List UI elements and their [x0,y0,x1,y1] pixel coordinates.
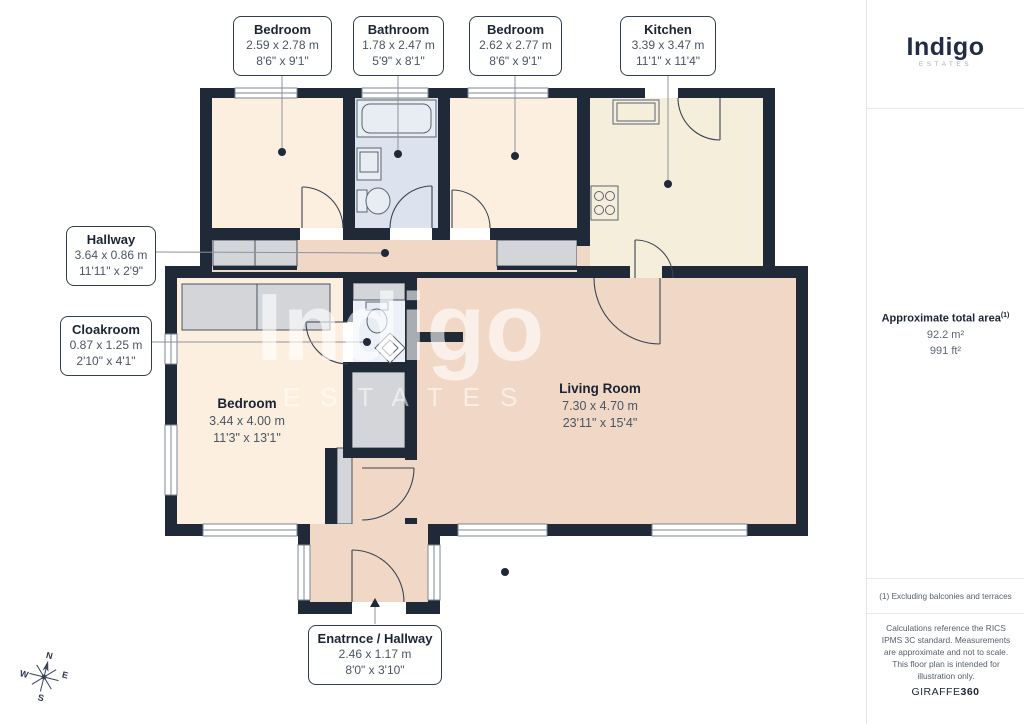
compass-w: W [19,668,30,680]
window [165,334,177,364]
window [298,545,310,600]
label-bedroom-top-mid: Bedroom 2.62 x 2.77 m 8'6" x 9'1" [469,16,562,76]
label-bathroom: Bathroom 1.78 x 2.47 m 5'9" x 8'1" [353,16,444,76]
total-area-imperial: 991 ft² [867,343,1024,359]
bathtub [357,100,436,137]
disclaimer-text: Calculations reference the RICS IPMS 3C … [877,622,1015,682]
door-opening-kitchen [645,88,678,98]
closet-corridor-side [337,448,352,524]
brand-tagline: ESTATES [867,61,1024,68]
room-bedroom-top-mid [450,98,577,228]
cloakroom-counter [353,283,405,300]
floorplan-page: N E W S Indigo ESTATES Bedroom 2.59 x 2.… [0,0,1024,724]
room-bedroom-top-left [212,98,343,228]
window [468,88,548,98]
compass-n: N [45,650,54,661]
room-kitchen [590,98,763,266]
closet-center [352,372,405,448]
divider [867,108,1024,109]
giraffe360-name: GIRAFFE [911,686,960,698]
total-area-title: Approximate total area [882,313,1001,325]
giraffe360-suffix: 360 [960,686,979,698]
brand-name: Indigo [867,34,1024,60]
compass-s: S [37,692,45,703]
window [458,524,547,536]
window [428,545,440,600]
info-sidebar: Indigo ESTATES Approximate total area(1)… [866,0,1024,724]
bathroom-sink [357,148,381,180]
window [235,88,297,98]
cloakroom-toilet [366,302,388,333]
label-hallway: Hallway 3.64 x 0.86 m 11'11" x 2'9" [66,226,156,286]
brand-logo: Indigo ESTATES [867,34,1024,68]
label-entrance-hallway: Enatrnce / Hallway 2.46 x 1.17 m 8'0" x … [308,625,442,685]
footnote-text: (1) Excluding balconies and terraces [879,592,1011,601]
compass-e: E [61,669,69,680]
compass-north-needle [43,660,51,672]
total-area-footnote-ref: (1) [1001,312,1010,319]
footnote-section: (1) Excluding balconies and terraces [867,578,1024,614]
label-bedroom-bottom-left: Bedroom 3.44 x 4.00 m 11'3" x 13'1" [167,394,327,447]
window [362,88,428,98]
label-kitchen: Kitchen 3.39 x 3.47 m 11'1" x 11'4" [620,16,716,76]
window [652,524,747,536]
compass: N E W S [14,645,73,708]
label-bedroom-top-left: Bedroom 2.59 x 2.78 m 8'6" x 9'1" [233,16,332,76]
label-living-room: Living Room 7.30 x 4.70 m 23'11" x 15'4" [510,379,690,432]
window [203,524,297,536]
label-cloakroom: Cloakroom 0.87 x 1.25 m 2'10" x 4'1" [60,316,152,376]
closet-hallway-right [497,240,577,266]
total-area-metric: 92.2 m² [867,327,1024,343]
room-entrance [310,536,428,602]
bathroom-toilet [357,188,390,214]
total-area-block: Approximate total area(1) 92.2 m² 991 ft… [867,308,1024,359]
closet-bedroom-bl [182,284,330,330]
giraffe360-brand: GIRAFFE360 [867,686,1024,698]
